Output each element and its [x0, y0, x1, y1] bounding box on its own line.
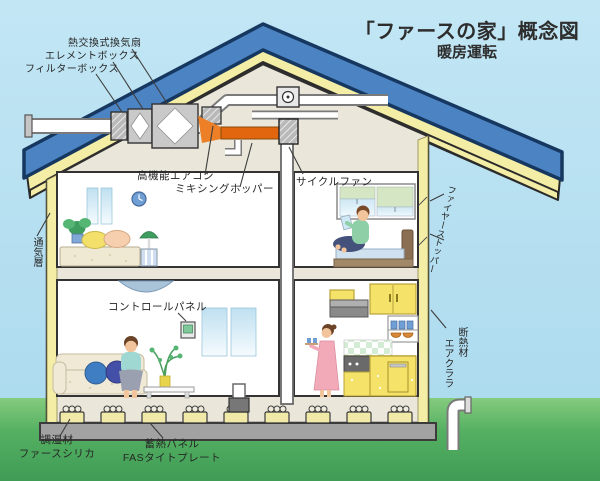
- diagram-scene: 「ファースの家」概念図 暖房運転 熱交換式換気扇 エレメントボックス フィルター…: [0, 0, 600, 481]
- label-filter-box: フィルターボックス: [25, 63, 119, 76]
- label-aircon: 高機能エアコン: [137, 170, 214, 184]
- outside-exhaust-pipe: [453, 397, 471, 450]
- label-aircrara: エアクララ: [441, 338, 454, 388]
- diagram-title: 「ファースの家」概念図: [340, 15, 594, 44]
- label-humidity-material: 調湿材 ファースシリカ: [14, 433, 100, 461]
- control-panel-device: [181, 322, 195, 338]
- wall-clock: [132, 192, 146, 206]
- filter-box-unit: [111, 112, 127, 140]
- vertical-duct: [281, 140, 293, 404]
- duct-junction-box: [279, 119, 298, 144]
- label-humidity-line1: 調湿材: [41, 434, 74, 446]
- label-storage-line2: FASタイトプレート: [123, 452, 221, 464]
- label-storage-panel: 蓄熱パネル FASタイトプレート: [118, 437, 226, 465]
- right-wall-insulation: [418, 136, 428, 423]
- heated-air-duct: [221, 127, 283, 139]
- label-storage-line1: 蓄熱パネル: [145, 438, 200, 450]
- lamp-nightstand: [140, 232, 158, 267]
- label-mixing-hopper: ミキシングホッパー: [175, 183, 274, 197]
- label-cycle-fan: サイクルファン: [296, 176, 372, 190]
- label-heat-exchange-fan: 熱交換式換気扇: [68, 37, 142, 50]
- label-insulation: 断熱材: [455, 327, 468, 357]
- cycle-fan-box: [277, 87, 299, 107]
- label-control-panel: コントロールパネル: [108, 301, 207, 315]
- outside-intake-cap: [25, 115, 32, 137]
- label-ventilation-layer: 通気層: [30, 237, 43, 267]
- diagram-subtitle: 暖房運転: [340, 41, 594, 62]
- label-element-box: エレメントボックス: [45, 50, 139, 63]
- label-humidity-line2: ファースシリカ: [19, 448, 95, 460]
